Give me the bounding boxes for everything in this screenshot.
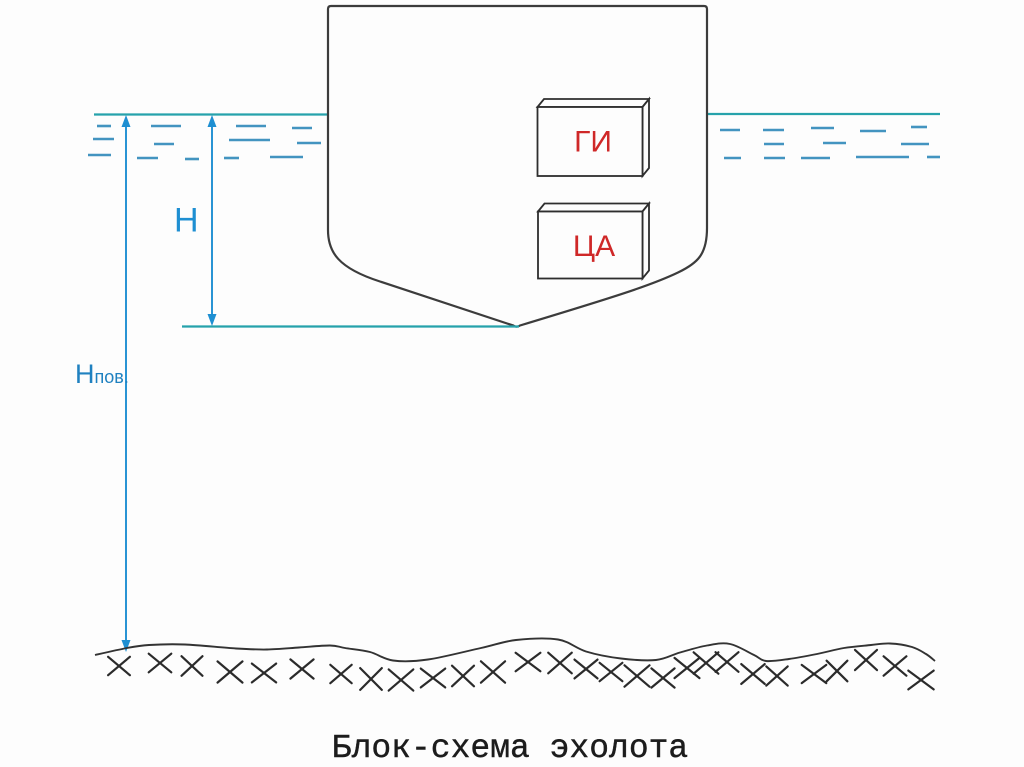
svg-text:H: H <box>174 202 199 240</box>
svg-text:Блок-схема эхолота: Блок-схема эхолота <box>332 730 688 767</box>
svg-text:ЦА: ЦА <box>573 230 615 263</box>
svg-text:ГИ: ГИ <box>574 126 612 159</box>
